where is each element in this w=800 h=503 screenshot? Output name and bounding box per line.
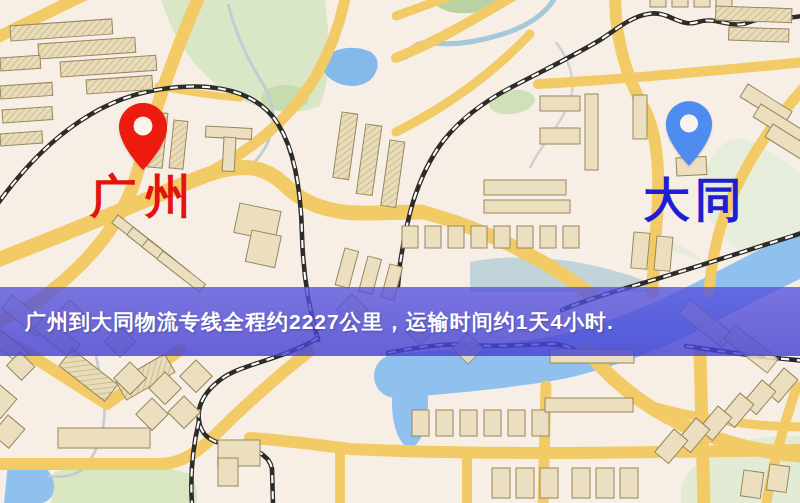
route-info-text: 广州到大同物流专线全程约2227公里，运输时间约1天4小时. <box>0 308 614 336</box>
logistics-route-map: 广州到大同物流专线全程约2227公里，运输时间约1天4小时. 广州 大同 <box>0 0 800 503</box>
destination-marker[interactable] <box>665 100 713 167</box>
map-canvas[interactable] <box>0 0 800 503</box>
route-info-banner: 广州到大同物流专线全程约2227公里，运输时间约1天4小时. <box>0 287 800 356</box>
red-map-pin-icon <box>118 102 168 171</box>
destination-city-label: 大同 <box>643 176 747 223</box>
origin-marker[interactable] <box>118 102 168 171</box>
blue-map-pin-icon <box>665 100 713 167</box>
origin-city-label: 广州 <box>90 174 200 220</box>
